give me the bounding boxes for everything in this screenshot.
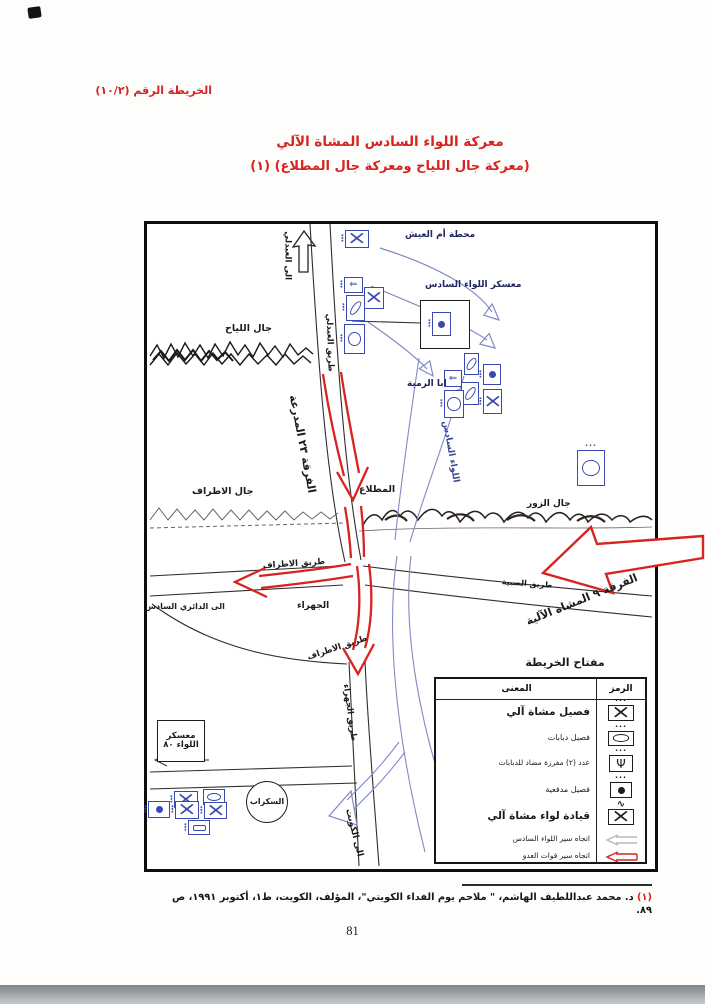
- legend-meaning: فصيل مدفعية: [436, 786, 597, 795]
- unit-symbol-artillery: [148, 801, 170, 818]
- battle-map: معسكر اللواء ٨٠ السكراب الى العبدلي طريق…: [144, 221, 658, 872]
- brigade80-camp-label-2: اللواء ٨٠: [163, 741, 199, 750]
- sixth-brigade-route-arrow-icon: [597, 834, 645, 846]
- legend-row: فصيل دبابات: [436, 726, 645, 750]
- legend-meaning: فصيل مشاة آلي: [436, 707, 597, 719]
- page-title: معركة اللواء السادس المشاة الآلي: [215, 134, 565, 150]
- scrap-yard-label: السكراب: [250, 798, 284, 807]
- legend-row: قيادة لواء مشاة آلي: [436, 803, 645, 831]
- unit-symbol-mechanized: [346, 295, 365, 321]
- scrap-yard-circle: السكراب: [246, 781, 288, 823]
- unit-symbol-infantry: [204, 802, 227, 819]
- legend-row: اتجاه سير اللواء السادس: [436, 831, 645, 848]
- enemy-attack-arrows: [235, 372, 703, 674]
- legend-row: عدد (٢) مفرزة مضاد للدبابات: [436, 750, 645, 777]
- anti-tank-detachment-icon: [597, 755, 645, 772]
- jal-zor-label: جال الزور: [527, 500, 571, 510]
- footnote-text: د. محمد عبداللطيف الهاشم، " ملاحم يوم ال…: [172, 892, 652, 916]
- legend-meaning: اتجاه سير قوات العدو: [436, 852, 597, 860]
- legend-row: فصيل مشاة آلي: [436, 700, 645, 726]
- artillery-platoon-icon: [597, 782, 645, 798]
- unit-symbol-tanks-east: [577, 450, 605, 486]
- jal-atraf-label: جال الاطراف: [192, 487, 253, 497]
- page-subtitle: (معركة جال اللياح ومعركة جال المطلاع) (١…: [215, 159, 565, 174]
- legend-meaning: فصيل دبابات: [436, 734, 597, 743]
- jahra-label: الجهراء: [297, 602, 329, 612]
- page-number: 81: [0, 924, 705, 939]
- legend-meaning-column-header: المعنى: [436, 684, 597, 694]
- unit-symbol-artillery: [483, 364, 501, 385]
- to-sixth-ring-label: الى الدائري السادس: [145, 603, 225, 612]
- map-reference-number: الخريطة الرقم (١٠/٢): [70, 84, 212, 97]
- aba-rumiya-label: ابا الرمية: [407, 380, 447, 390]
- footnote-marker: (١): [637, 892, 652, 903]
- sixth-brigade-camp-label: معسكر اللواء السادس: [425, 281, 521, 291]
- mechanized-infantry-platoon-icon: [597, 705, 645, 721]
- map-legend: الرمز المعنى فصيل مشاة آلي فصيل دبابات ع…: [434, 677, 647, 864]
- legend-meaning: قيادة لواء مشاة آلي: [436, 811, 597, 823]
- footnote-rule: [462, 884, 652, 886]
- unit-symbol-tanks: [344, 324, 365, 354]
- legend-meaning: عدد (٢) مفرزة مضاد للدبابات: [436, 759, 597, 767]
- mutlaa-label: المطلاع: [359, 485, 395, 495]
- to-abdali-label: الى العبدلي: [282, 221, 291, 291]
- legend-symbol-column-header: الرمز: [597, 684, 645, 694]
- legend-header-row: الرمز المعنى: [436, 679, 645, 700]
- legend-title: مفتاح الخريطة: [515, 657, 615, 669]
- ridge-jal-liyah: [150, 342, 313, 365]
- brigade80-camp-box: معسكر اللواء ٨٠: [157, 720, 205, 762]
- scan-edge-shadow: [0, 985, 705, 1004]
- unit-symbol-infantry: [483, 389, 502, 414]
- ridge-jal-atraf: [150, 508, 345, 528]
- legend-column-divider: [596, 679, 597, 862]
- footnote: (١) د. محمد عبداللطيف الهاشم، " ملاحم يو…: [158, 891, 652, 917]
- unit-symbol-infantry: [364, 287, 384, 309]
- unit-symbol-artillery-camp: [432, 312, 451, 336]
- legend-meaning: اتجاه سير اللواء السادس: [436, 835, 597, 843]
- unit-symbol-support: [188, 820, 210, 835]
- enemy-forces-route-arrow-icon: [597, 851, 645, 863]
- umm-aish-station-label: محطة أم العيش: [405, 231, 475, 241]
- unit-symbol-antitank: [344, 277, 363, 293]
- legend-row: فصيل مدفعية: [436, 777, 645, 803]
- scanned-book-page: الخريطة الرقم (١٠/٢) معركة اللواء السادس…: [0, 0, 705, 1004]
- scan-artifact: [27, 6, 41, 19]
- jal-liyah-label: جال اللياح: [225, 324, 272, 334]
- ridge-mutlaa-jal-zor: [359, 509, 652, 531]
- legend-row: اتجاه سير قوات العدو: [436, 848, 645, 865]
- unit-symbol-station: [345, 230, 369, 248]
- unit-symbol-infantry: [175, 801, 199, 819]
- tank-platoon-icon: [597, 731, 645, 746]
- mechanized-infantry-brigade-hq-icon: [597, 809, 645, 825]
